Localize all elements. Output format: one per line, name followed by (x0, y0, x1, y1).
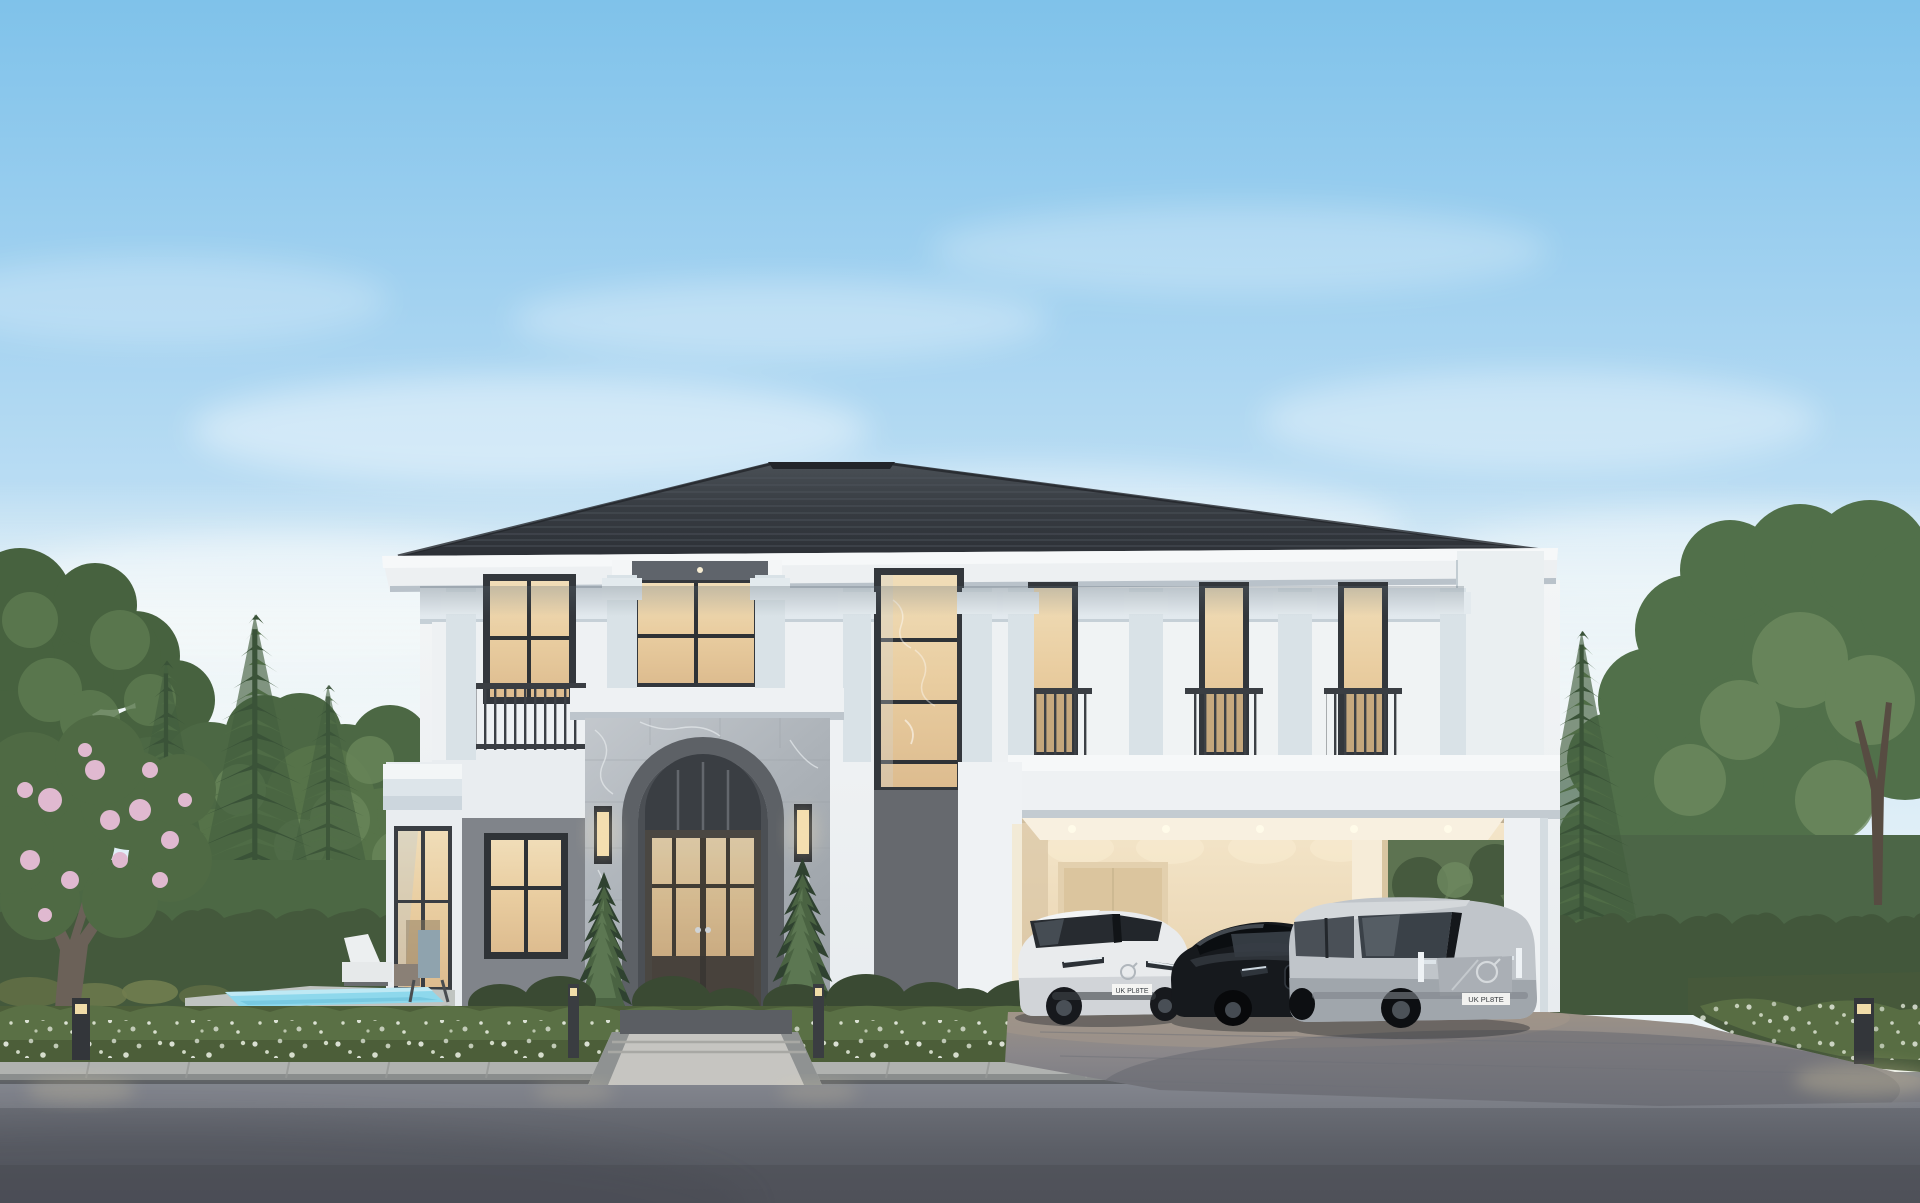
svg-text:UK PL8TE: UK PL8TE (1115, 988, 1148, 995)
svg-text:UK PL8TE: UK PL8TE (1468, 995, 1503, 1004)
